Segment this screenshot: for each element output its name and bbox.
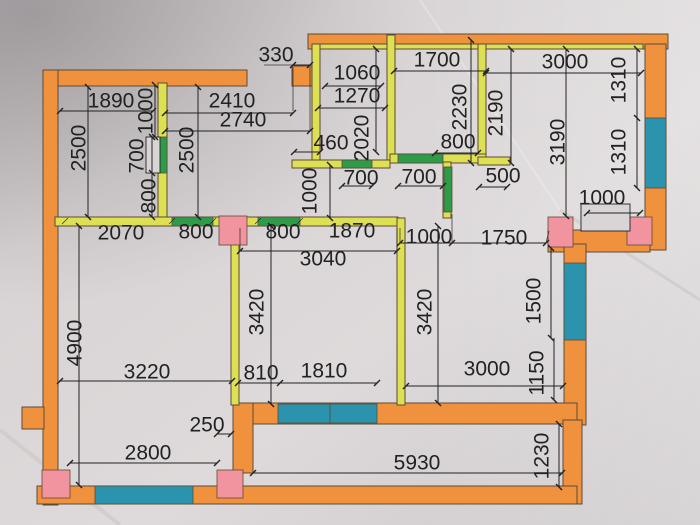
dim-label-2740: 2740 <box>220 109 267 132</box>
column-notch-right <box>627 217 652 245</box>
dim-label-800-room1: 800 <box>138 178 161 213</box>
dim-label-1810: 1810 <box>301 360 348 383</box>
dim-label-1000-corr: 1000 <box>299 168 322 215</box>
dim-label-700-bath1: 700 <box>343 167 378 190</box>
window-kitchen-1 <box>278 404 330 423</box>
dim-label-800-toilet: 800 <box>440 131 475 154</box>
wall-top-stub <box>292 66 312 86</box>
floor-plan-svg: 330 1890 2410 2740 1060 1270 1700 3000 4… <box>0 0 700 525</box>
dim-label-1500: 1500 <box>523 278 546 325</box>
window-kitchen-2 <box>330 404 377 423</box>
dim-label-2500-room1: 2500 <box>68 125 91 172</box>
dim-label-3220: 3220 <box>124 361 171 384</box>
dim-label-5930: 5930 <box>394 452 441 475</box>
window-right-lower <box>564 263 586 340</box>
dim-label-3420-right: 3420 <box>414 289 437 336</box>
dim-label-3000-top: 3000 <box>542 51 589 74</box>
dim-label-810: 810 <box>243 362 278 385</box>
floor-plan-photo: 330 1890 2410 2740 1060 1270 1700 3000 4… <box>0 0 700 525</box>
dim-label-2070: 2070 <box>98 222 145 245</box>
dim-label-2190: 2190 <box>485 90 508 137</box>
dim-label-3420-left: 3420 <box>246 289 269 336</box>
wall-bath-divider <box>387 35 395 162</box>
wall-left-jog <box>22 407 44 429</box>
door-bath2 <box>398 154 443 163</box>
dim-label-250: 250 <box>189 414 224 437</box>
dim-label-800-b: 800 <box>265 221 300 244</box>
dim-label-330: 330 <box>258 44 293 67</box>
dim-label-1870: 1870 <box>329 220 376 243</box>
dim-label-500: 500 <box>485 165 520 188</box>
dim-label-1750: 1750 <box>481 227 528 250</box>
dim-label-1890: 1890 <box>88 90 135 113</box>
dim-label-2800: 2800 <box>125 442 172 465</box>
wall-top-left <box>43 70 247 86</box>
column-bottom-left <box>42 470 70 498</box>
dim-label-2020: 2020 <box>351 115 374 162</box>
dim-label-3040: 3040 <box>300 248 347 271</box>
door-hall <box>444 167 452 212</box>
column-middle <box>219 216 247 245</box>
dim-label-1000-room1: 1000 <box>135 88 158 135</box>
dim-label-1310-b: 1310 <box>608 129 631 176</box>
column-notch-left <box>548 217 573 247</box>
dim-label-700-bath2: 700 <box>401 166 436 189</box>
window-right-upper <box>645 118 666 188</box>
dim-label-460: 460 <box>313 132 348 155</box>
dim-label-1700: 1700 <box>414 49 461 72</box>
window-bottom <box>95 486 193 504</box>
dim-label-700-door: 700 <box>126 138 149 173</box>
dim-label-2230: 2230 <box>449 84 472 131</box>
dim-label-1310-a: 1310 <box>608 57 631 104</box>
dim-label-1000-notch: 1000 <box>579 187 626 210</box>
dim-label-3190: 3190 <box>547 119 570 166</box>
dim-label-1000-mid: 1000 <box>406 226 453 249</box>
dim-label-3000-bot: 3000 <box>464 358 511 381</box>
dim-label-4900: 4900 <box>64 320 87 367</box>
wall-kitchen-left <box>231 226 239 405</box>
dim-label-1060: 1060 <box>334 62 381 85</box>
wall-left <box>43 70 58 505</box>
dim-label-800-a: 800 <box>178 221 213 244</box>
wall-balcony-left <box>233 403 253 473</box>
wall-living-left <box>397 218 405 405</box>
dim-label-2500-room2: 2500 <box>176 127 199 174</box>
dim-label-1150: 1150 <box>526 350 549 395</box>
column-bottom-mid <box>217 470 243 498</box>
dim-label-1230: 1230 <box>531 433 554 480</box>
dim-label-1270: 1270 <box>334 85 381 108</box>
